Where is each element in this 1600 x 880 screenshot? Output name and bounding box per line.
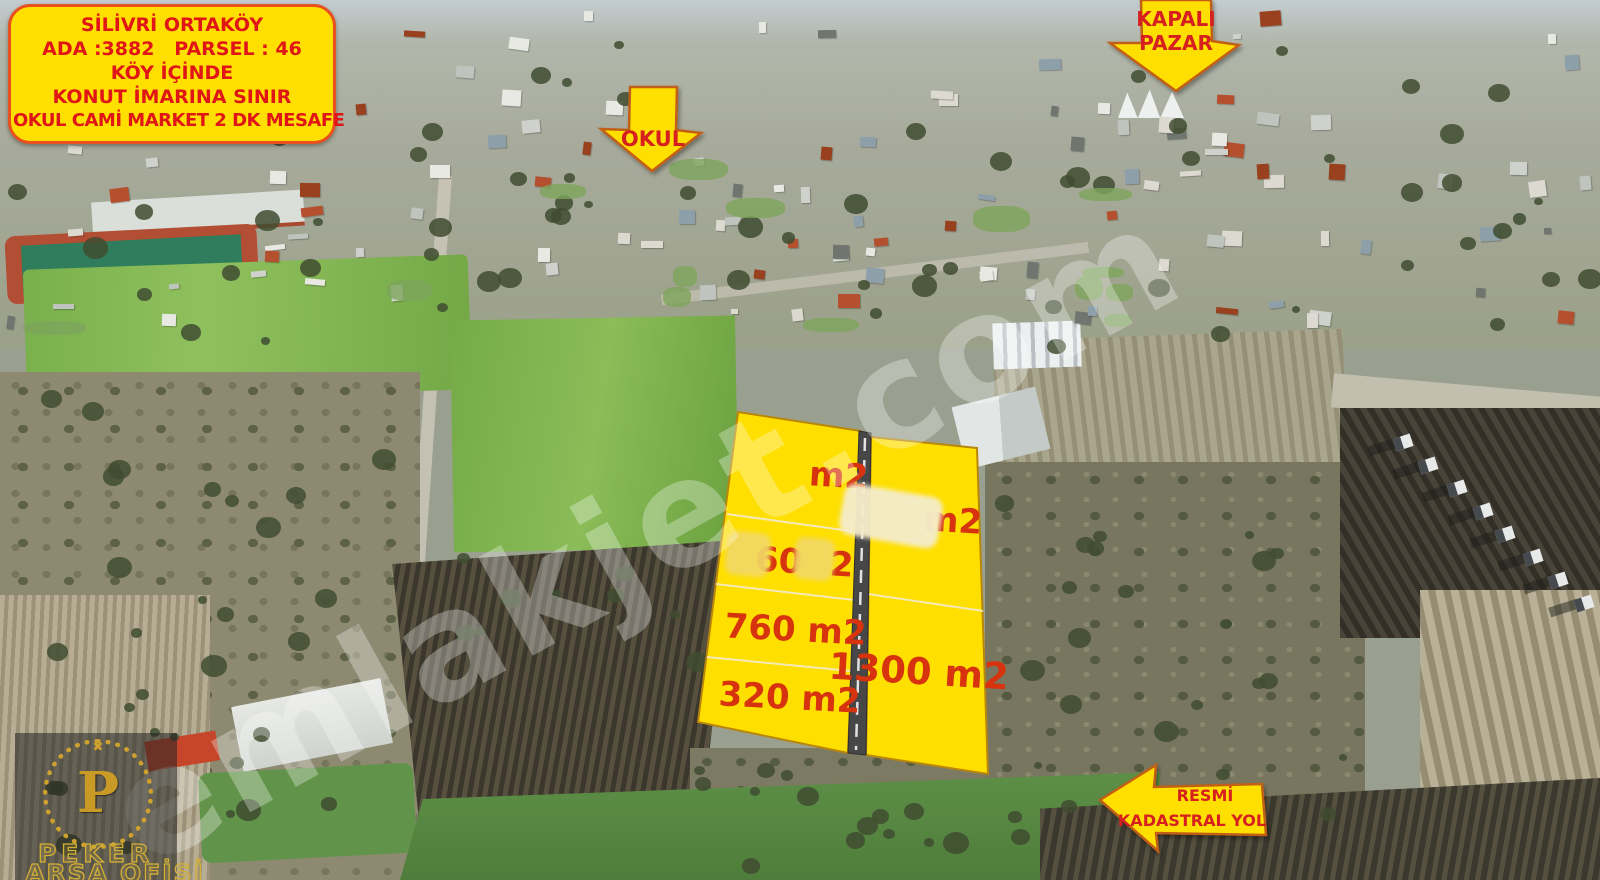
censor-blur-patch — [792, 536, 836, 582]
sign-line-zoning: KONUT İMARINA SINIR — [13, 85, 331, 109]
sign-line-parcel: ADA :3882 PARSEL : 46 — [13, 37, 331, 61]
wreath-ribbon-icon: ✖ — [48, 740, 148, 755]
parcel-right-column — [866, 437, 988, 774]
laurel-wreath-icon: ✖ P — [43, 739, 153, 849]
agency-logo: ✖ P PEKER ARSA OFİSİ — [15, 733, 177, 880]
sign-line-location: SİLİVRİ ORTAKÖY — [13, 13, 331, 37]
listing-info-sign: SİLİVRİ ORTAKÖY ADA :3882 PARSEL : 46 KÖ… — [8, 4, 336, 144]
kadastral-yol-arrow-icon — [1100, 765, 1266, 851]
aerial-listing-photo: m2 m2 60 2 760 m2 320 m2 1300 m2 KAPALI … — [0, 0, 1600, 880]
kapali-pazar-label-line1: KAPALI — [1136, 7, 1215, 31]
brand-monogram: P — [48, 760, 148, 826]
sign-line-distance: OKUL CAMİ MARKET 2 DK MESAFE — [13, 109, 331, 133]
kadastral-label-line1: RESMİ — [1177, 786, 1234, 805]
kapali-pazar-label-line2: PAZAR — [1139, 31, 1213, 55]
censor-blur-patch — [724, 530, 772, 578]
sign-line-village: KÖY İÇİNDE — [13, 61, 331, 85]
kadastral-label-line2: KADASTRAL YOL — [1118, 811, 1266, 830]
okul-label: OKUL — [621, 127, 685, 151]
brand-name-line2: ARSA OFİSİ — [17, 859, 213, 880]
